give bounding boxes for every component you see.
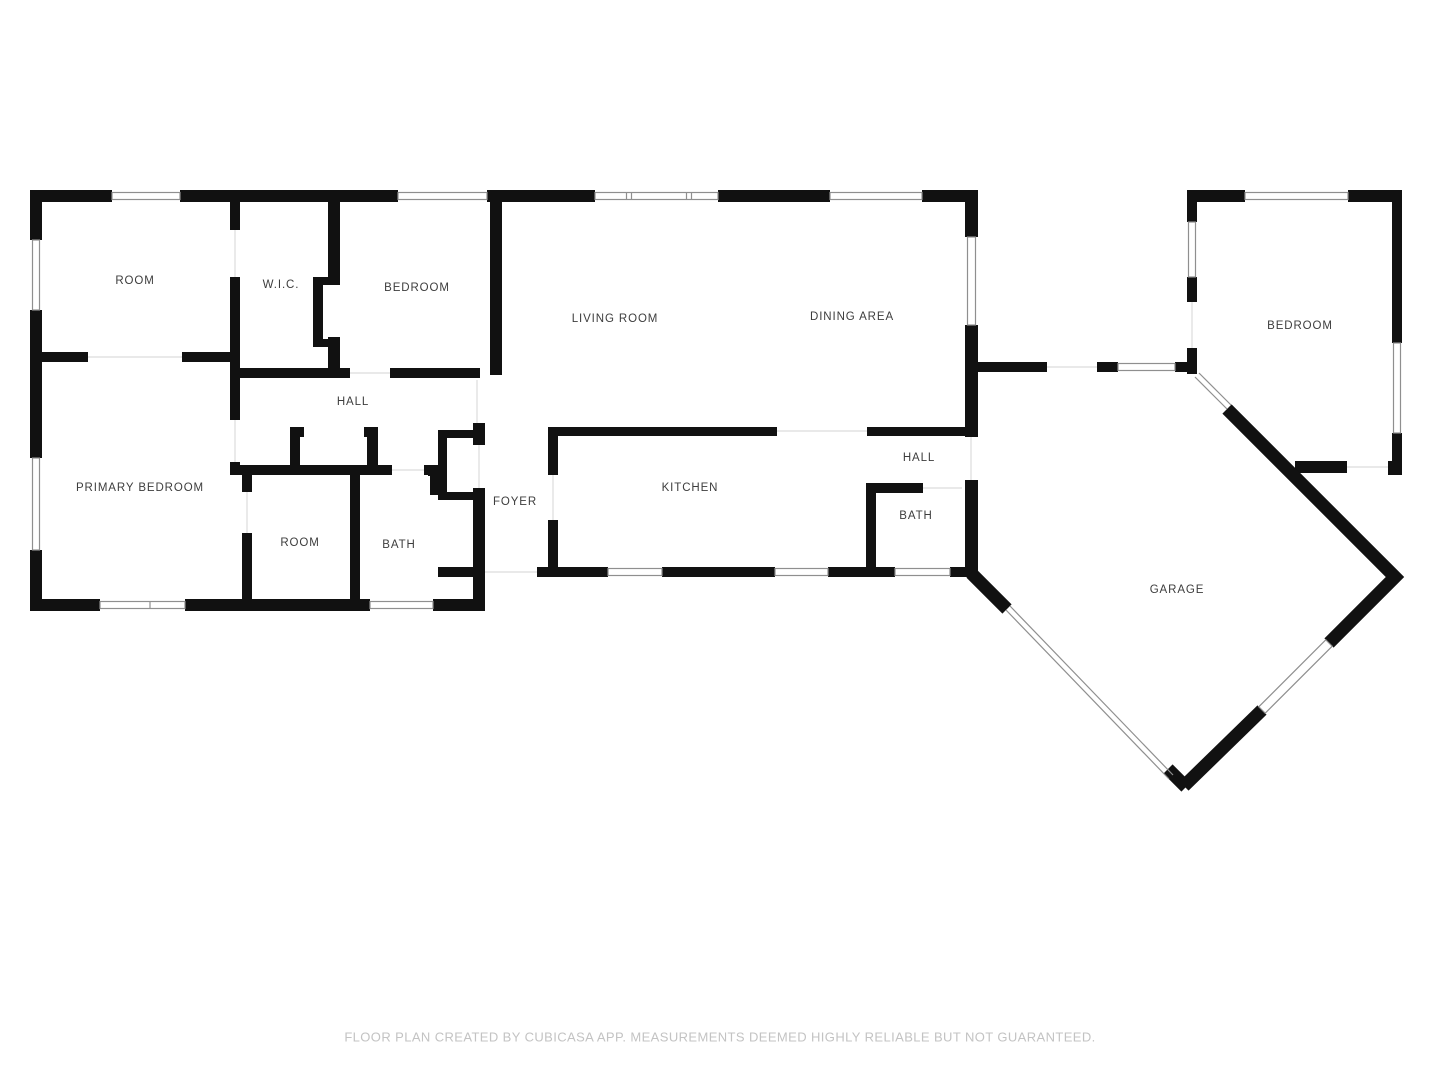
wall-segment [230, 277, 240, 360]
wall-segment [971, 573, 1007, 609]
bedroom-wing-walls [968, 190, 1402, 475]
wall-segment [242, 475, 252, 492]
wall-segment [328, 202, 340, 277]
room-label-bath-main: BATH [382, 539, 415, 551]
room-label-bedroom-top: BEDROOM [384, 282, 450, 294]
window [1394, 343, 1401, 433]
wall-segment [438, 430, 447, 500]
window [968, 237, 976, 325]
wall-segment [1388, 461, 1402, 475]
wall-segment [350, 468, 360, 599]
window [608, 569, 662, 576]
floor-plan-drawing [0, 0, 1440, 1068]
room-label-bath-right: BATH [899, 510, 932, 522]
wall-segment [965, 480, 978, 577]
wall-segment [866, 483, 876, 577]
wall-segment [473, 423, 485, 445]
wall-segment [30, 352, 88, 362]
window [33, 240, 40, 310]
wall-segment [313, 277, 340, 285]
wall-segment [1168, 769, 1186, 787]
wall-segment [313, 277, 323, 347]
garage-door [1006, 606, 1173, 779]
garage-door-line [1006, 610, 1169, 779]
wall-segment [867, 427, 965, 436]
wall-segment [1295, 461, 1347, 473]
room-label-foyer: FOYER [493, 496, 537, 508]
garage-door-line [1010, 606, 1173, 775]
room-label-wic: W.I.C. [263, 279, 300, 291]
wall-segment [367, 427, 378, 475]
exterior-walls [30, 190, 978, 611]
window [1259, 640, 1332, 713]
wall-segment [473, 488, 485, 611]
diagonal-door [1195, 373, 1231, 409]
room-label-hall-main: HALL [337, 396, 369, 408]
wall-segment [230, 202, 240, 230]
wall-segment [490, 198, 502, 375]
room-label-bedroom-right: BEDROOM [1267, 320, 1333, 332]
wall-segment [313, 339, 340, 347]
room-label-garage: GARAGE [1150, 584, 1205, 596]
room-label-room-top-left: ROOM [115, 275, 154, 287]
footer-disclaimer: FLOOR PLAN CREATED BY CUBICASA APP. MEAS… [344, 1030, 1095, 1045]
wall-segment [438, 430, 477, 438]
door-line [1195, 377, 1227, 409]
room-label-kitchen: KITCHEN [662, 482, 719, 494]
wall-segment [968, 362, 1047, 372]
door-line [1199, 373, 1231, 405]
window [398, 193, 487, 200]
floor-plan-page: ROOM W.I.C. BEDROOM LIVING ROOM DINING A… [0, 0, 1440, 1068]
room-label-primary-bedroom: PRIMARY BEDROOM [76, 482, 204, 494]
room-label-living-room: LIVING ROOM [572, 313, 659, 325]
window [100, 602, 185, 609]
wall-segment [242, 533, 252, 599]
wall-segment [438, 567, 473, 577]
wall-segment [237, 368, 350, 378]
window [1245, 193, 1348, 200]
window [1189, 222, 1196, 277]
wall-segment [548, 427, 777, 436]
wall-segment [1184, 710, 1262, 786]
room-label-hall-right: HALL [903, 452, 935, 464]
wall-segment [290, 427, 304, 437]
window [775, 569, 828, 576]
window [1118, 364, 1175, 371]
window [895, 569, 950, 576]
interior-walls [30, 198, 965, 611]
window [370, 602, 433, 609]
wall-segment [548, 520, 558, 570]
wall-segment [1097, 362, 1118, 372]
wall-segment [230, 352, 240, 420]
window [33, 458, 40, 550]
window [830, 193, 922, 200]
window [112, 193, 180, 200]
wall-segment [390, 368, 480, 378]
wall-segment [428, 468, 438, 476]
room-label-room-bottom: ROOM [280, 537, 319, 549]
wall-segment [1175, 362, 1197, 372]
window [595, 193, 718, 200]
wall-segment [1227, 409, 1395, 643]
room-label-dining-area: DINING AREA [810, 311, 894, 323]
